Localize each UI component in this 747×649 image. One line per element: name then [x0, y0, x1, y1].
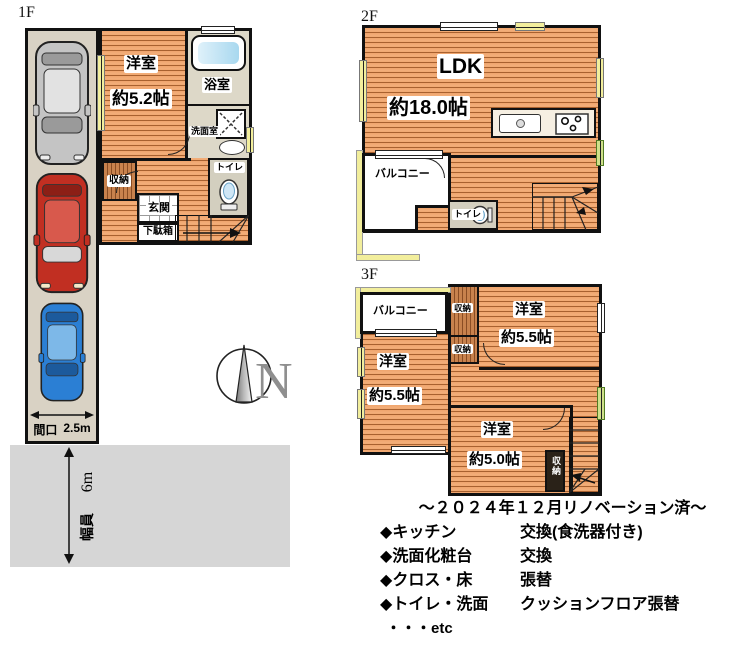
compass-north-letter: N [255, 353, 293, 410]
f1-closet-label: 収納 [107, 175, 131, 187]
window-icon [391, 446, 446, 454]
renovation-item-detail: 張替 [520, 569, 552, 593]
renovation-item-name: クロス・床 [392, 572, 472, 589]
renovation-title: ～２０２４年１２月リノベーション済～ [380, 497, 745, 521]
renovation-item-name: キッチン [392, 524, 456, 541]
window-yellow-icon [515, 22, 545, 31]
entrance-label: 玄関 [146, 202, 172, 215]
f1-bedroom-label: 洋室 [124, 55, 158, 73]
frontage-arrow-icon [30, 409, 94, 421]
f2-balcony-leg [362, 205, 418, 232]
window-yellow-icon [97, 55, 105, 131]
f3-closet-b: 収納 [451, 337, 479, 364]
floor-label-3f: 3F [361, 266, 378, 284]
washroom-label: 洗面室 [189, 126, 220, 137]
f3-closet-c: 収納 [545, 450, 565, 492]
stove-icon [555, 113, 589, 135]
balcony-trim [356, 254, 420, 261]
stairs-2f-icon [532, 183, 598, 230]
stairs-1f-icon [175, 215, 249, 242]
window-yellow-icon [357, 347, 365, 377]
bathtub-icon [191, 35, 246, 71]
f3-balcony: バルコニー [360, 292, 448, 334]
renovation-item: ◆キッチン 交換(食洗器付き) [380, 521, 745, 545]
window-yellow-icon [357, 389, 365, 419]
floor-label-1f: 1F [18, 4, 35, 22]
bullet-icon: ◆ [380, 596, 392, 613]
renovation-item-detail: クッションフロア張替 [520, 593, 680, 617]
ldk-size: 約18.0帖 [387, 96, 470, 120]
washer-icon [216, 109, 246, 139]
bath-label: 浴室 [202, 77, 232, 93]
window-yellow-icon [596, 58, 604, 98]
stairs-3f-icon [569, 417, 599, 493]
kitchen-counter [491, 108, 596, 138]
renovation-notes: ～２０２４年１２月リノベーション済～ ◆キッチン 交換(食洗器付き) ◆洗面化粧… [380, 497, 745, 641]
f2-toilet-room: トイレ [448, 200, 498, 230]
kitchen-sink-icon [499, 114, 541, 133]
renovation-item: ◆クロス・床 張替 [380, 569, 745, 593]
f3-bedroom-bottom-label: 洋室 [481, 421, 513, 438]
window-green-icon [596, 140, 604, 166]
f3-balcony-label: バルコニー [371, 305, 430, 318]
road: 6m 幅員 [10, 445, 290, 567]
f3-bedroom-right-size: 約5.5帖 [499, 329, 554, 347]
driveway: 間口 2.5m [25, 28, 99, 444]
ldk-label: LDK [437, 54, 484, 79]
car-gray-icon [33, 39, 91, 167]
bullet-icon: ◆ [380, 548, 392, 565]
bullet-icon: ◆ [380, 524, 392, 541]
floor-label-2f: 2F [361, 8, 378, 26]
floor3-plan-right: 収納 収納 洋室 約5.5帖 洋室 約5.0帖 収納 [448, 284, 602, 496]
renovation-item-detail: 交換(食洗器付き) [520, 521, 643, 545]
window-yellow-icon [359, 60, 367, 122]
frontage-value: 2.5m [63, 421, 90, 438]
frontage-dimension: 間口 2.5m [28, 421, 96, 438]
door-arc [543, 408, 565, 430]
renovation-item-name: 洗面化粧台 [392, 548, 472, 565]
f1-toilet-room: トイレ [208, 158, 249, 218]
road-width-arrow-icon [62, 447, 76, 564]
f3-bedroom-left-size: 約5.5帖 [367, 387, 422, 405]
f3-closet-c-label: 収納 [550, 456, 563, 476]
toilet-icon [219, 178, 239, 212]
window-icon [201, 26, 235, 34]
renovation-item-detail: 交換 [520, 545, 552, 569]
compass-icon: N [215, 338, 299, 412]
window-icon [440, 22, 498, 31]
f3-bedroom-right-label: 洋室 [513, 301, 545, 318]
car-blue-icon [36, 301, 88, 403]
f2-toilet-label: トイレ [452, 209, 483, 220]
road-width-value: 6m [79, 462, 97, 502]
floor1-plan: 浴室 洗面室 洋室 約5.2帖 収納 トイレ [99, 28, 252, 245]
bullet-icon: ◆ [380, 572, 392, 589]
shoebox-label: 下駄箱 [141, 226, 175, 238]
window-yellow-icon [246, 127, 254, 153]
f3-closet-a-label: 収納 [452, 303, 473, 313]
renovation-item-name: トイレ・洗面 [392, 596, 488, 613]
car-red-icon [33, 171, 91, 295]
floor-plan-canvas: 1F [0, 0, 747, 649]
f2-balcony-label: バルコニー [373, 168, 432, 181]
entrance: 玄関 [137, 193, 179, 223]
shoebox: 下駄箱 [137, 223, 179, 242]
f3-bedroom-left-label: 洋室 [377, 353, 409, 370]
f2-balcony: バルコニー [362, 153, 451, 208]
window-icon [597, 303, 605, 333]
f3-bedroom-bottom-size: 約5.0帖 [467, 451, 522, 469]
f3-closet-a: 収納 [451, 287, 479, 337]
f1-toilet-label: トイレ [214, 162, 245, 173]
floor2-plan: LDK 約18.0帖 バルコニー トイレ [362, 25, 601, 233]
renovation-item: ◆トイレ・洗面 クッションフロア張替 [380, 593, 745, 617]
renovation-item: ◆洗面化粧台 交換 [380, 545, 745, 569]
window-green-icon [597, 387, 605, 420]
f1-bedroom-size: 約5.2帖 [110, 89, 172, 109]
washbasin-icon [219, 140, 245, 155]
f3-closet-b-label: 収納 [452, 344, 473, 354]
floor3-plan-left: バルコニー 洋室 約5.5帖 [360, 292, 451, 455]
bath-washroom-area: 浴室 洗面室 [185, 31, 249, 158]
frontage-label: 間口 [33, 421, 57, 438]
renovation-etc: ・・・etc [380, 617, 745, 641]
road-width-label: 幅員 [77, 504, 97, 550]
